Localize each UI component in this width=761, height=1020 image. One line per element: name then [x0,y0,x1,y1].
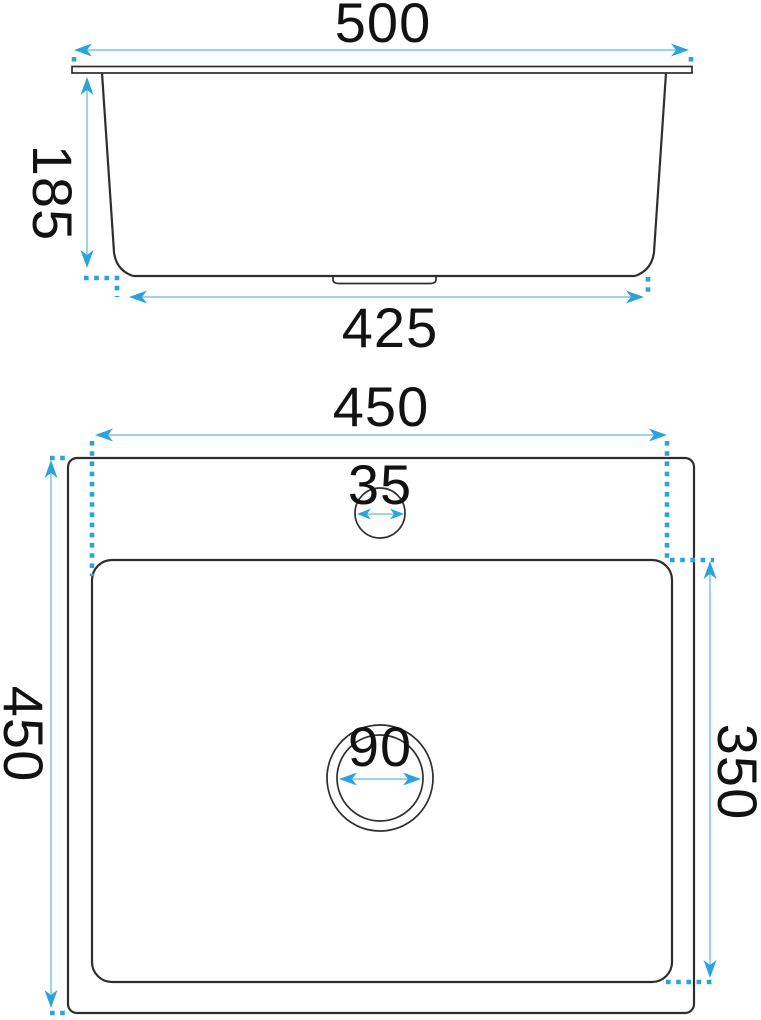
dim-label-drain: 90 [348,719,412,775]
dim-label-outer-height: 450 [0,686,51,782]
dim-label-bottom-width: 425 [342,300,438,356]
dim-label-bowl-length: 350 [709,724,761,820]
drain-fitting-outline [333,277,436,284]
sink-dimension-drawing: 500 185 425 450 35 450 350 90 [0,0,761,1020]
dim-label-top-width: 500 [335,0,431,51]
dim-label-faucet-hole: 35 [348,457,412,513]
sink-wall-left [102,73,133,276]
side-view [72,44,692,304]
dim-label-bowl-width: 450 [333,379,429,435]
sink-rim-outline [72,67,692,74]
dimension-185 [81,77,118,297]
dim-label-depth: 185 [24,145,80,241]
sink-wall-right [635,73,666,276]
extension-dots-bottom-left [84,278,117,297]
